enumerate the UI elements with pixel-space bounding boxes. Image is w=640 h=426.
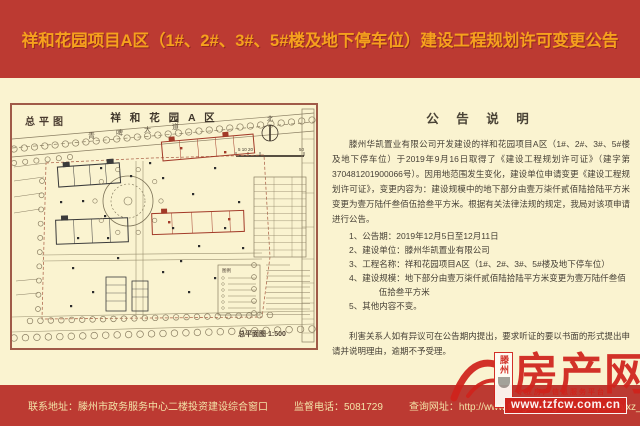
internal-paths	[12, 161, 314, 332]
shield-icon	[498, 377, 510, 388]
indicator-table	[254, 177, 306, 257]
notice-panel: 公 告 说 明 滕州华凯置业有限公司开发建设的祥和花园项目A区（1#、2#、3#…	[332, 108, 630, 368]
existing-buildings	[55, 159, 148, 311]
scale-bar: 5 10 20 50	[236, 147, 305, 156]
notes-block	[266, 265, 310, 315]
notice-title: 公 告 说 明	[332, 108, 630, 127]
list-item: 1、公告期：2019年12月5日至12月11日	[332, 229, 630, 243]
watermark-tagline: 专业房产信息服务平台	[516, 387, 606, 397]
site-plan-drawing: 总平图 祥 和 花 园 A 区 青 啤 大 道 北	[12, 105, 316, 348]
sheet-title-strip	[302, 109, 314, 342]
notice-list: 1、公告期：2019年12月5日至12月11日 2、建设单位：滕州华凯置业有限公…	[332, 229, 630, 313]
list-item: 5、其他内容不变。	[332, 299, 630, 313]
supervision-phone: 监督电话：5081729	[294, 398, 383, 413]
notice-paragraph: 滕州华凯置业有限公司开发建设的祥和花园项目A区（1#、2#、3#、5#楼及地下停…	[332, 137, 630, 227]
list-item: 4、建设规模：地下部分由壹万柒仟贰佰陆拾陆平方米变更为壹万陆仟叁佰伍拾叁平方米	[332, 271, 630, 299]
legend-title: 图例	[222, 267, 231, 274]
watermark-url: www.tzfcw.com.cn	[504, 397, 627, 414]
svg-text:5 10 20: 5 10 20	[238, 147, 254, 152]
map-corner-label: 总平图	[25, 115, 67, 128]
north-arrow-icon: 北	[262, 115, 278, 141]
left-parcel-lines	[14, 163, 46, 295]
site-watermark: 滕州 房产网 专业房产信息服务平台 www.tzfcw.com.cn	[448, 344, 640, 420]
svg-text:北: 北	[267, 115, 273, 123]
notice-banner: 祥和花园项目A区（1#、2#、3#、5#楼及地下停车位）建设工程规划许可变更公告	[0, 0, 640, 78]
page-title: 祥和花园项目A区（1#、2#、3#、5#楼及地下停车位）建设工程规划许可变更公告	[22, 27, 619, 51]
map-title: 祥 和 花 园 A 区	[110, 111, 217, 124]
tree-rows	[12, 117, 315, 341]
list-item: 2、建设单位：滕州华凯置业有限公司	[332, 243, 630, 257]
site-plan-panel: 总平图 祥 和 花 园 A 区 青 啤 大 道 北	[10, 103, 318, 350]
list-item: 3、工程名称：祥和花园项目A区（1#、2#、3#、5#楼及地下停车位）	[332, 257, 630, 271]
contact-address: 联系地址：滕州市政务服务中心二楼投资建设综合窗口	[28, 398, 268, 413]
permit-buildings-red	[152, 130, 255, 235]
watermark-city: 滕州	[496, 355, 511, 375]
